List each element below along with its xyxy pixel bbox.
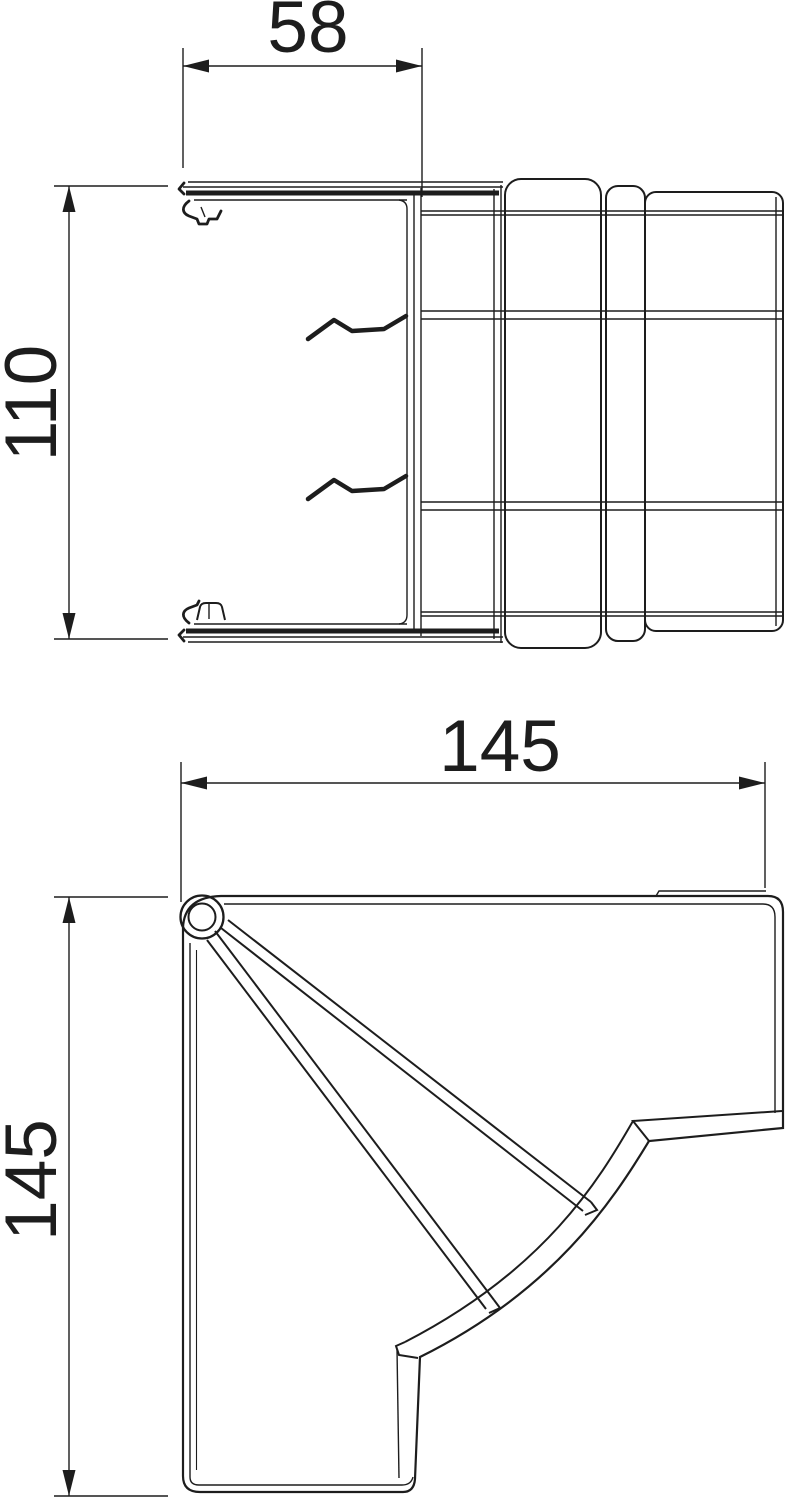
arrowhead-down [63, 613, 76, 639]
arrowhead-right [396, 60, 422, 73]
technical-drawing: 58 110 [0, 0, 786, 1500]
profile-body-sections [421, 179, 783, 648]
arrowhead-left [183, 60, 209, 73]
dim-top-width-label: 58 [267, 0, 348, 68]
fan-radius-steep [207, 931, 500, 1313]
profile-back-wall [399, 188, 421, 636]
swing-arm [396, 1121, 633, 1478]
corner-inner-lines [190, 891, 782, 1485]
arrowhead-up [63, 897, 76, 923]
ledge-step [633, 1111, 782, 1141]
dim-top-height: 110 [0, 186, 168, 639]
dim-top-height-label: 110 [0, 345, 72, 461]
dim-top-width: 58 [183, 0, 422, 197]
dim-bottom-width: 145 [181, 706, 765, 902]
cover-clip-top [183, 201, 221, 224]
arrowhead-up [63, 186, 76, 212]
bottom-view: 145 145 [0, 706, 783, 1496]
dim-bottom-width-label: 145 [439, 706, 561, 787]
corner-body-outline [183, 896, 783, 1492]
wire-hook-lower [308, 476, 406, 499]
wire-hook-upper [308, 316, 406, 339]
dim-bottom-height-label: 145 [0, 1119, 72, 1241]
dim-bottom-height: 145 [0, 897, 168, 1496]
arrowhead-left [181, 777, 207, 790]
hinge-circle-inner [189, 904, 216, 931]
body-section-narrow [606, 186, 645, 641]
arrowhead-down [63, 1470, 76, 1496]
body-section-raised [505, 179, 601, 648]
hinge-circle-outer [181, 896, 224, 939]
profile-bottom-flange [179, 601, 503, 642]
latch-block [197, 603, 225, 620]
top-view: 58 110 [0, 0, 783, 648]
arrowhead-right [739, 777, 765, 790]
technical-drawing-sheet: 58 110 [0, 0, 786, 1500]
fan-radius-shallow [221, 920, 597, 1215]
profile-top-flange [179, 182, 503, 224]
body-section-end [645, 192, 783, 631]
